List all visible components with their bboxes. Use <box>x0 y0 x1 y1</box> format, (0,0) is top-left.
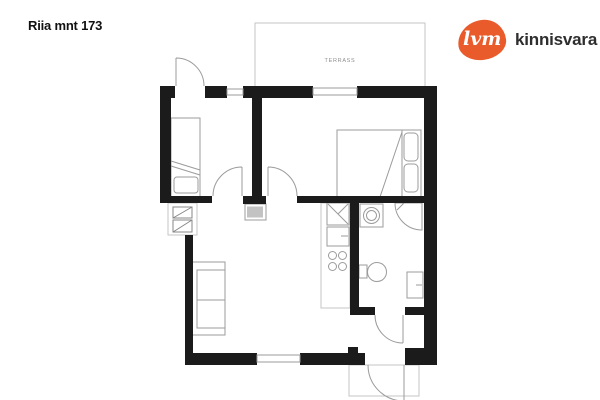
boiler-icon <box>407 272 423 298</box>
bedroom1-door-icon <box>213 167 242 196</box>
wall-segment <box>350 307 375 315</box>
chimney-shaft-icon <box>168 203 197 235</box>
wall-segment <box>348 347 358 354</box>
toilet-icon <box>359 263 387 282</box>
wall-segment <box>243 86 313 98</box>
exterior-door-icon <box>176 58 204 86</box>
wall-segment <box>185 235 193 365</box>
bathroom-door-icon <box>375 315 403 343</box>
heater-icon <box>245 204 266 220</box>
wall-segment <box>424 86 437 365</box>
terrace-outline <box>255 23 425 88</box>
sofa-icon <box>192 262 225 335</box>
floorplan-page: Riia mnt 173 lvm kinnisvara TERRASS <box>0 0 600 400</box>
wall-segment <box>297 196 437 203</box>
terrace: TERRASS <box>255 23 425 88</box>
window-icon <box>257 355 300 362</box>
wall-segment <box>405 307 425 315</box>
entry-porch <box>349 365 419 396</box>
wall-segment <box>205 86 227 98</box>
wall-segment <box>300 353 365 365</box>
terrace-label: TERRASS <box>325 58 356 64</box>
wall-segment <box>405 348 437 365</box>
wall-segment <box>252 98 262 196</box>
doors <box>176 58 404 400</box>
wall-segment <box>350 203 359 308</box>
walls <box>160 86 437 365</box>
kitchen-counter-icon <box>321 203 350 308</box>
bedroom2-door-icon <box>268 167 297 196</box>
wall-segment <box>185 353 257 365</box>
corner-sink-icon <box>395 203 422 230</box>
stove-icon <box>329 252 347 271</box>
wall-segment <box>160 86 171 203</box>
washing-machine-icon <box>360 204 383 227</box>
window-icon <box>227 89 243 95</box>
floorplan-drawing: TERRASS <box>0 0 600 400</box>
wall-segment <box>160 196 212 203</box>
wall-segment <box>243 196 266 204</box>
double-bed-icon <box>337 130 421 197</box>
single-bed-icon <box>171 118 200 198</box>
terrace-door-window-icon <box>313 88 357 95</box>
